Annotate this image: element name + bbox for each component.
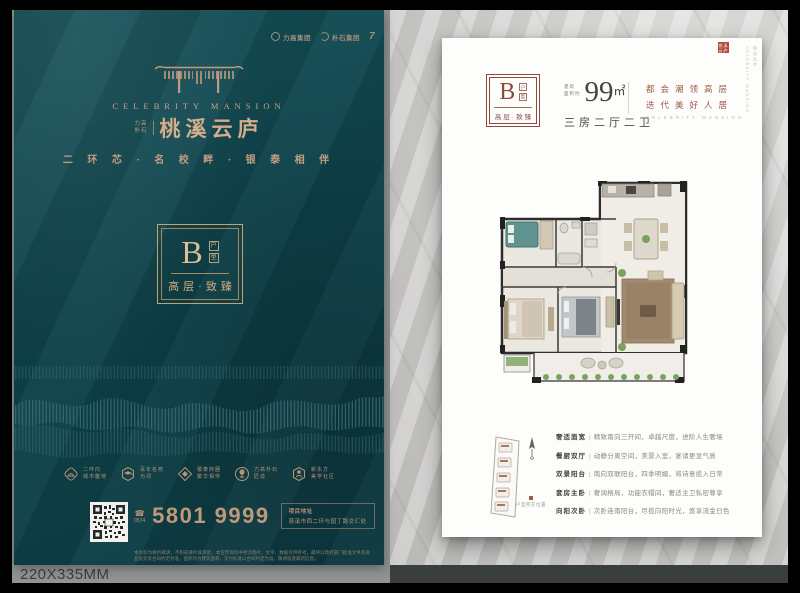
description-label: 餐厨双厅: [556, 453, 586, 460]
unit-letter: B: [499, 80, 515, 104]
floor-plan: [488, 167, 706, 395]
seven-logo-label: 7: [369, 31, 375, 42]
feature-icons-row: 二环内 城市腹地 百年名校 为邻: [14, 466, 384, 482]
description-text: 精致南向三开间，卓越尺度，进阶人生奢境: [594, 434, 723, 441]
unit-type-char-1: 户: [209, 241, 219, 251]
phone-area-code: 0574: [134, 518, 145, 524]
feature-label: 匠造: [254, 474, 278, 481]
description-separator: |: [589, 490, 591, 497]
unit-type-vertical: 户 型: [209, 241, 219, 263]
brand-prefix-bottom: 朴石: [134, 128, 147, 135]
description-text: 奢阔格局，功能衣帽间，奢适主卫私密尊享: [594, 490, 723, 497]
legend-label: 户型所在位置: [516, 502, 546, 508]
person-icon: [291, 466, 307, 482]
feature-mall: 银泰商圈 繁华相伴: [177, 466, 221, 482]
area-unit: ㎡: [614, 84, 626, 98]
area-prefix-2: 面积约: [564, 91, 581, 98]
description-label: 套房主卧: [556, 490, 586, 497]
unit-letter: B: [181, 236, 202, 268]
design-proof-canvas: 220X335MM 力高集团 朴石集团 7: [12, 10, 788, 583]
badge-divider: [494, 107, 532, 108]
unit-type-vertical: 户 型: [519, 83, 527, 101]
keyplan-legend: 户型所在位置: [516, 496, 546, 508]
feature-label: 二环内: [83, 467, 107, 474]
compass-north-icon: [526, 436, 538, 460]
room-configuration: 三房二厅二卫: [564, 114, 654, 130]
description-text: 南向双联阳台，四季明媚，将诗意揽入日常: [594, 471, 723, 478]
description-row: 套房主卧|奢阔格局，功能衣帽间，奢适主卫私密尊享: [556, 490, 730, 497]
brand-prefix: 力高 朴石: [134, 121, 153, 135]
backdrop-shadow-strip: [390, 565, 788, 583]
slogan-line-1: 都会潮领高层: [646, 83, 756, 95]
feature-label: 城市腹地: [83, 474, 107, 481]
unit-type-char-2: 型: [519, 93, 527, 101]
description-label: 奢适面宽: [556, 434, 586, 441]
unit-grade: 高层·致臻: [164, 278, 236, 294]
feature-label: 力高朴石: [254, 467, 278, 474]
feature-label: 百年名校: [140, 467, 164, 474]
brand-name-en: CELEBRITY MANSION: [14, 101, 384, 111]
brand-name-cn: 桃溪云庐: [160, 113, 264, 143]
rico-logo-label: 力高集团: [283, 32, 311, 42]
seven-logo: 7: [369, 31, 375, 42]
unit-b-badge-inner: B 户 型 高层·致臻: [161, 228, 239, 300]
gem-diamond-icon: [177, 466, 193, 482]
pushi-logo-label: 朴石集团: [332, 32, 360, 42]
city-bridge-icon: [63, 466, 79, 482]
address-value: 慈溪市西二环与园丁路交汇处: [289, 517, 367, 525]
unit-b-badge-page: B 户 型 高层·致臻: [486, 74, 540, 127]
phone-icon: ☎: [135, 509, 145, 518]
area-value: 99: [585, 76, 614, 108]
description-row: 向阳次卧|次卧连南阳台，尽揽向阳时光，悠享流金日色: [556, 508, 730, 515]
description-separator: |: [589, 434, 591, 441]
project-address-box: 项目地址 慈溪市西二环与园丁路交汇处: [281, 503, 375, 529]
description-separator: |: [589, 471, 591, 478]
brand-name-row: 力高 朴石 桃溪云庐: [14, 113, 384, 143]
rico-logo-icon: [271, 32, 280, 41]
pushi-logo-icon: [320, 32, 329, 41]
header-divider: [628, 82, 629, 114]
description-text: 次卧连南阳台，尽揽向阳时光，悠享流金日色: [594, 508, 730, 515]
feature-label: 银泰商圈: [197, 467, 221, 474]
legend-swatch: [529, 496, 533, 500]
feature-label: 繁华相伴: [197, 474, 221, 481]
brand-prefix-top: 力高: [134, 121, 147, 128]
slogan-line-2: 迭代美好人居: [646, 99, 756, 111]
description-label: 双景阳台: [556, 471, 586, 478]
floorplan-page: 桃溪云庐 桃溪云庐 CELEBRITY MANSION B 户 型 高层·致臻 …: [442, 38, 762, 537]
address-label: 项目地址: [289, 507, 367, 515]
unit-b-badge: B 户 型 高层·致臻: [157, 224, 243, 304]
description-row: 双景阳台|南向双联阳台，四季明媚，将诗意揽入日常: [556, 471, 730, 478]
description-label: 向阳次卧: [556, 508, 586, 515]
developer-logos: 力高集团 朴石集团 7: [271, 31, 375, 42]
room-descriptions: 奢适面宽|精致南向三开间，卓越尺度，进阶人生奢境 餐厨双厅|动静分离空间，美景入…: [556, 434, 730, 515]
description-row: 奢适面宽|精致南向三开间，卓越尺度，进阶人生奢境: [556, 434, 730, 441]
description-separator: |: [589, 453, 591, 460]
badge-divider: [171, 273, 229, 274]
description-row: 餐厨双厅|动静分离空间，美景入室，宴请更显气质: [556, 453, 730, 460]
feature-label: 美学社区: [311, 474, 335, 481]
poster-tagline: 二 环 芯 · 名 校 畔 · 银 泰 相 伴: [14, 151, 384, 166]
tree-icon: [234, 466, 250, 482]
description-separator: |: [589, 508, 591, 515]
area-block: 建筑 面积约 99㎡: [564, 78, 626, 107]
rico-group-logo: 力高集团: [271, 32, 311, 42]
feature-craft: 力高朴石 匠造: [234, 466, 278, 482]
red-seal-stamp: 桃溪云庐: [718, 42, 729, 53]
phone-number: 5801 9999: [152, 503, 270, 529]
unit-type-char-2: 型: [209, 253, 219, 263]
pushi-group-logo: 朴石集团: [320, 32, 360, 42]
description-text: 动静分离空间，美景入室，宴请更显气质: [594, 453, 716, 460]
qr-code: [90, 502, 128, 542]
gate-emblem-icon: [151, 62, 247, 98]
unit-grade: 高层·致臻: [493, 111, 533, 121]
feature-community: 新东方 美学社区: [291, 466, 335, 482]
artboard-size-label: 220X335MM: [20, 566, 110, 583]
feature-label: 新东方: [311, 467, 335, 474]
wave-tick-pattern: [14, 366, 384, 461]
graduation-cap-icon: [120, 466, 136, 482]
feature-location: 二环内 城市腹地: [63, 466, 107, 482]
feature-school: 百年名校 为邻: [120, 466, 164, 482]
unit-type-char-1: 户: [519, 83, 527, 91]
legal-disclaimer: 本资料为要约邀请，不构成要约或承诺。本宣传资料中所涉图片、文字、数据仅供参考，最…: [134, 550, 370, 562]
feature-label: 为邻: [140, 474, 164, 481]
poster-front: 力高集团 朴石集团 7 CELEBRITY MANSION: [14, 10, 384, 565]
slogan-en: CELEBRITY MANSION: [646, 115, 744, 120]
contact-row: ☎ 0574 5801 9999 项目地址 慈溪市西二环与园丁路交汇处: [134, 503, 375, 529]
